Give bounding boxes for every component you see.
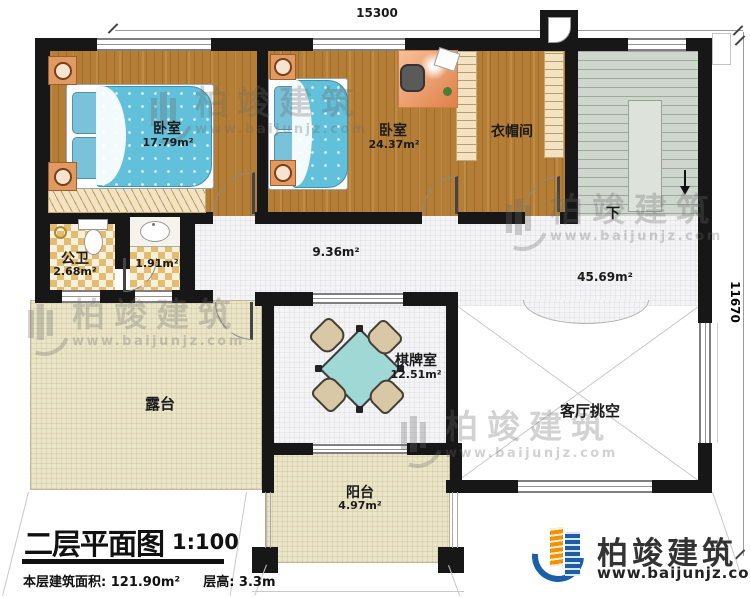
plan-title: 二层平面图: [24, 521, 164, 563]
wall: [262, 300, 274, 443]
stair-stringer: [628, 100, 662, 212]
railing: [265, 492, 271, 548]
plant: [443, 87, 452, 96]
room-label-void: 客厅挑空: [560, 400, 620, 421]
dimension-top-label: 15300: [356, 6, 398, 20]
room-area-landing: 45.69m²: [577, 270, 633, 284]
brand-logo-tower-orange: [550, 527, 563, 567]
sink-basin: [140, 221, 170, 242]
lamp-icon: [54, 168, 72, 186]
brand-logo-tower-blue: [565, 532, 580, 576]
wall: [211, 38, 313, 51]
room-label-bedroom1: 卧室: [153, 118, 181, 138]
railing: [452, 492, 458, 548]
dimension-right-label: 11670: [728, 279, 742, 325]
room-area-hallway: 9.36m²: [312, 245, 359, 259]
stair-arrow-stem: [684, 170, 686, 187]
wall: [565, 51, 578, 216]
wardrobe: [48, 188, 206, 213]
nightstand: [270, 160, 296, 186]
room-label-bedroom2: 卧室: [379, 120, 407, 140]
towel-ring-icon: [54, 226, 67, 239]
window: [628, 38, 686, 51]
wall: [652, 480, 712, 493]
room-area-bedroom1: 17.79m²: [142, 136, 193, 149]
room-area-balcony: 4.97m²: [338, 499, 381, 512]
window: [518, 480, 652, 493]
balcony-sliding-door: [313, 444, 407, 454]
wall: [698, 38, 712, 323]
nightstand: [48, 162, 77, 191]
room-label-cloakroom: 衣帽间: [491, 121, 533, 141]
stairs-down-label: 下: [606, 203, 620, 223]
plan-scale: 1:100: [172, 530, 239, 554]
dimension-tick: [108, 23, 119, 34]
lamp-icon: [274, 164, 292, 182]
faucet-icon: [152, 223, 155, 226]
wardrobe: [544, 51, 564, 158]
title-underline: [22, 559, 224, 564]
room-area-bedroom2: 24.37m²: [368, 138, 419, 151]
wall: [446, 292, 458, 443]
pillar: [438, 547, 464, 573]
brand-website: www.baijunjz.com: [597, 564, 750, 582]
wall: [257, 51, 268, 215]
wall: [578, 38, 628, 51]
room-label-chess: 棋牌室: [395, 350, 437, 370]
window: [97, 38, 211, 51]
dimension-top-line: [115, 30, 743, 31]
window: [62, 290, 100, 303]
pier-outline: [712, 33, 731, 65]
window: [313, 38, 405, 51]
wall: [255, 212, 422, 224]
office-chair: [400, 64, 425, 92]
window: [699, 323, 711, 443]
wall: [262, 443, 274, 493]
lamp-icon: [274, 58, 292, 76]
wall: [403, 292, 446, 306]
wall: [35, 290, 62, 303]
floor-area-info: 本层建筑面积: 121.90m²: [23, 575, 180, 590]
floor-height-info: 层高: 3.3m: [203, 575, 275, 590]
room-area-chess: 12.51m²: [390, 368, 441, 381]
brand-logo: [534, 522, 594, 588]
window: [135, 290, 172, 303]
table-corner: [315, 365, 322, 372]
wall: [560, 212, 578, 224]
window-sill-line: [717, 323, 718, 443]
room-label-terrace: 露台: [145, 393, 175, 414]
nightstand: [48, 56, 77, 85]
wall: [180, 217, 195, 292]
floor-plan-canvas: 15300 11670: [0, 0, 750, 598]
table-corner: [356, 325, 363, 332]
wardrobe: [456, 51, 477, 161]
table-corner: [356, 406, 363, 413]
lamp-icon: [54, 62, 72, 80]
perspective-line: [252, 591, 464, 592]
wall: [172, 290, 213, 303]
nightstand: [270, 54, 296, 80]
wall: [458, 212, 525, 224]
dimension-right-line: [743, 32, 744, 556]
wall: [100, 290, 135, 303]
sliding-opening: [313, 293, 403, 304]
room-area-washroom: 1.91m²: [135, 257, 178, 270]
floor-info: 本层建筑面积: 121.90m² 层高: 3.3m: [23, 571, 276, 590]
room-area-bathroom: 2.68m²: [53, 265, 96, 278]
stair-arrow-head: [680, 186, 690, 195]
